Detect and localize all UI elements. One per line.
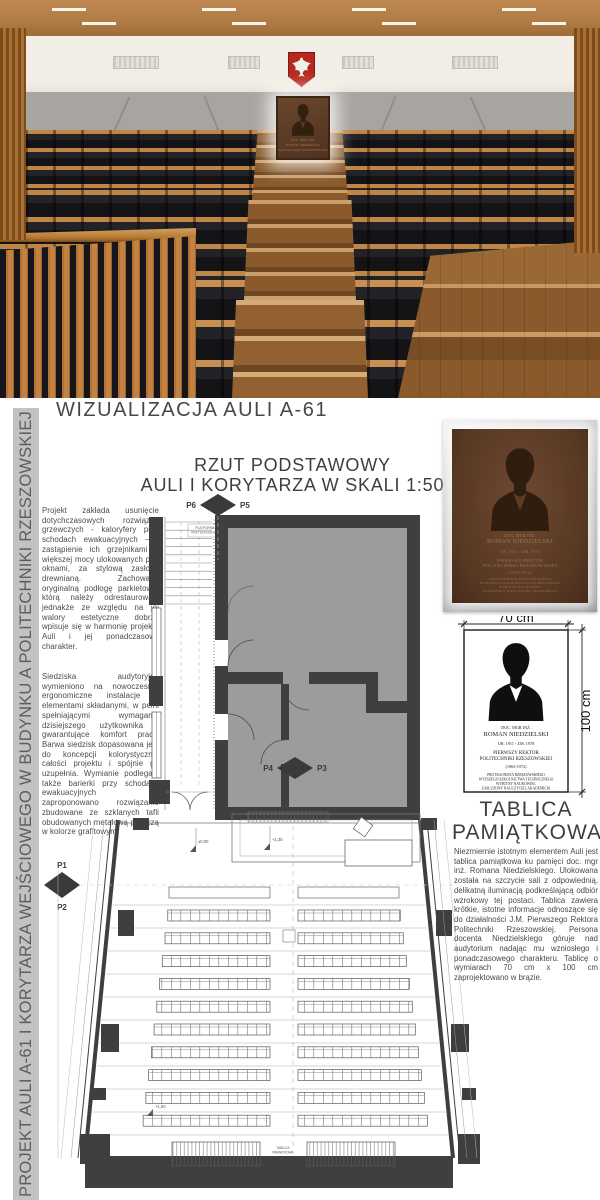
tablica-plan-label: PAMIĄTKOWA bbox=[272, 1151, 294, 1155]
entrance-door-swing bbox=[172, 792, 190, 810]
seat-rows-left-far bbox=[0, 130, 258, 190]
marker-label-p5: P5 bbox=[240, 501, 250, 510]
elevation-label: ±0,00 bbox=[198, 839, 209, 844]
marker-label-p1: P1 bbox=[57, 861, 67, 870]
seat-row bbox=[165, 933, 270, 944]
wall-vent bbox=[228, 56, 260, 69]
wall-pilaster bbox=[458, 1134, 480, 1164]
tablica-heading-line2: PAMIĄTKOWA bbox=[452, 822, 600, 845]
plaque-micro-text: POLITECHNIKI RZESZOWSKIEJ bbox=[278, 148, 328, 152]
marker-p6-p5 bbox=[200, 494, 236, 516]
plaque-text-line: POLITECHNIKI RZESZOWSKIEJ bbox=[452, 563, 588, 568]
seat-row bbox=[151, 1047, 270, 1058]
desk-row bbox=[169, 887, 270, 898]
drawing-text-line: WYBITNY NAUKOWIEC bbox=[496, 782, 536, 786]
door-opening bbox=[215, 714, 228, 740]
tablica-plan-label: TABLICA bbox=[276, 1146, 290, 1150]
seat-row bbox=[298, 933, 403, 944]
drawing-text-line: WYŻSZEGO SZKOLNICTWA TECHNICZNEGO bbox=[479, 777, 554, 782]
plaque-photo: DOC. MGR INŻ. ROMAN NIEDZIELSKI UR. 1911… bbox=[452, 429, 588, 603]
aula-wall-left bbox=[85, 820, 118, 1158]
plaque-micro-text: ROMAN NIEDZIELSKI bbox=[278, 143, 328, 147]
wall-pilaster bbox=[462, 1088, 476, 1100]
plaque-photo-frame: DOC. MGR INŻ. ROMAN NIEDZIELSKI UR. 1911… bbox=[443, 420, 597, 612]
tablica-heading: TABLICA PAMIĄTKOWA bbox=[452, 799, 600, 844]
seat-row bbox=[160, 978, 270, 989]
drawing-text-line: ROMAN NIEDZIELSKI bbox=[484, 731, 549, 738]
center-stairs-near bbox=[232, 300, 368, 398]
drawing-text-line: ZASŁUŻONY NAUCZYCIEL AKADEMICKI bbox=[481, 786, 551, 791]
aisle-marker-box bbox=[283, 930, 295, 942]
dimension-line bbox=[71, 820, 104, 1158]
entrance-door-swing bbox=[190, 792, 208, 810]
ceiling-light-strip bbox=[0, 8, 600, 11]
marker-label-p2: P2 bbox=[57, 903, 67, 912]
drawing-text-line: PROTAGONISTA RZESZOWSKIEGO bbox=[487, 773, 545, 777]
wall-vent bbox=[113, 56, 159, 69]
width-dimension: 70 cm bbox=[498, 616, 533, 625]
seat-row bbox=[298, 1047, 418, 1058]
drawing-text-line: UR. 1911 - ZM. 1978 bbox=[498, 741, 534, 746]
plaque-bust-silhouette bbox=[486, 443, 554, 531]
seat-row bbox=[143, 1115, 270, 1126]
seat-row bbox=[149, 1070, 270, 1081]
marker-label-p3: P3 bbox=[317, 764, 327, 773]
seat-row bbox=[168, 910, 270, 921]
wall-pilaster bbox=[101, 1024, 119, 1052]
wall-pilaster bbox=[80, 1134, 110, 1164]
back-bench-right bbox=[307, 1142, 395, 1166]
partition-wall bbox=[372, 701, 407, 713]
height-dimension: 100 cm bbox=[578, 690, 593, 733]
drawing-text-line: PIERWSZY REKTOR bbox=[493, 751, 539, 756]
auditorium-visualization-photo: DOC. MGR INŻ. ROMAN NIEDZIELSKI POLITECH… bbox=[0, 0, 600, 398]
seat-row bbox=[298, 956, 406, 967]
drawing-text-line: (1963-1972) bbox=[506, 764, 528, 769]
plan-corridor: PLATFORMA PRZYSCHODOWA bbox=[149, 517, 222, 810]
door-opening bbox=[215, 640, 228, 666]
seat-rows-right-far bbox=[342, 130, 600, 190]
marker-p1-p2 bbox=[44, 872, 80, 898]
wall-segment bbox=[149, 517, 163, 605]
seat-row bbox=[298, 978, 409, 989]
plaque-text-line: ROMAN NIEDZIELSKI bbox=[452, 539, 588, 545]
wall-vent bbox=[342, 56, 374, 69]
partition-wall bbox=[281, 684, 289, 740]
plaque-text-line: ZASŁUŻONY NAUCZYCIEL AKADEMICKI bbox=[452, 589, 588, 593]
plaque-micro-text: DOC. MGR INŻ. bbox=[278, 138, 328, 142]
seat-row bbox=[298, 1115, 427, 1126]
drawing-text-line: DOC. MGR INŻ. bbox=[501, 725, 531, 730]
plan-auditorium: ±0,00 +1,35 +1,50 TABLICA PAMIĄTKOWA bbox=[78, 812, 460, 1188]
wall-pilaster bbox=[92, 1088, 106, 1100]
wall-pilaster bbox=[133, 818, 149, 830]
seat-row bbox=[298, 1001, 412, 1012]
drawing-text-line: POLITECHNIKI RZESZOWSKIEJ bbox=[480, 757, 553, 762]
door-opening bbox=[283, 672, 309, 684]
floor-plan-drawing: PLATFORMA PRZYSCHODOWA bbox=[0, 440, 480, 1198]
side-wood-slats-left bbox=[0, 28, 26, 240]
aula-wall-back bbox=[85, 1156, 453, 1188]
marker-label-p4: P4 bbox=[263, 764, 273, 773]
seat-row bbox=[162, 956, 270, 967]
seat-row bbox=[298, 1070, 421, 1081]
seat-row bbox=[157, 1001, 270, 1012]
wall-vent bbox=[452, 56, 498, 69]
plaque-text-line: DOC. MGR INŻ. bbox=[452, 533, 588, 538]
ceiling-light-strip bbox=[30, 22, 600, 25]
wall-pilaster bbox=[118, 910, 134, 936]
plan-rooms-block bbox=[215, 515, 420, 820]
center-stairs-mid bbox=[244, 200, 356, 300]
seat-row bbox=[154, 1024, 270, 1035]
side-wood-slats-right bbox=[574, 28, 600, 253]
seat-row bbox=[146, 1092, 270, 1103]
tablica-description: Niezmiernie istotnym elementem Auli jest… bbox=[454, 847, 598, 983]
plaque-dimension-drawing: 70 cm 100 cm DOC. MGR INŻ. ROMAN NIEDZIE… bbox=[456, 616, 598, 806]
elevation-label: +1,50 bbox=[155, 1104, 166, 1109]
marker-label-p6: P6 bbox=[186, 501, 196, 510]
elevation-label: +1,35 bbox=[272, 837, 283, 842]
lecturer-desk bbox=[345, 840, 412, 866]
tablica-heading-line1: TABLICA bbox=[452, 799, 600, 822]
back-bench-left bbox=[172, 1142, 260, 1166]
seat-row bbox=[298, 910, 400, 921]
visualization-heading: WIZUALIZACJA AULI A-61 bbox=[56, 399, 328, 422]
stage-radiator bbox=[248, 812, 328, 822]
seat-row bbox=[298, 1092, 424, 1103]
seat-row bbox=[298, 1024, 415, 1035]
presentation-board: DOC. MGR INŻ. ROMAN NIEDZIELSKI POLITECH… bbox=[0, 0, 600, 1200]
wood-slat-balustrade bbox=[0, 236, 196, 398]
plaque-bust-silhouette bbox=[290, 102, 316, 136]
plaque-text-line: UR. 1911 - ZM. 1978 bbox=[452, 549, 588, 554]
plaque-text-line: (1963-1972) bbox=[452, 570, 588, 575]
wall-segment bbox=[149, 676, 163, 706]
aula-wall-right bbox=[420, 820, 453, 1158]
desk-row bbox=[298, 887, 399, 898]
memorial-plaque-on-wall: DOC. MGR INŻ. ROMAN NIEDZIELSKI POLITECH… bbox=[276, 96, 330, 160]
wood-ceiling bbox=[0, 0, 600, 36]
platform-label: PLATFORMA bbox=[195, 526, 215, 530]
